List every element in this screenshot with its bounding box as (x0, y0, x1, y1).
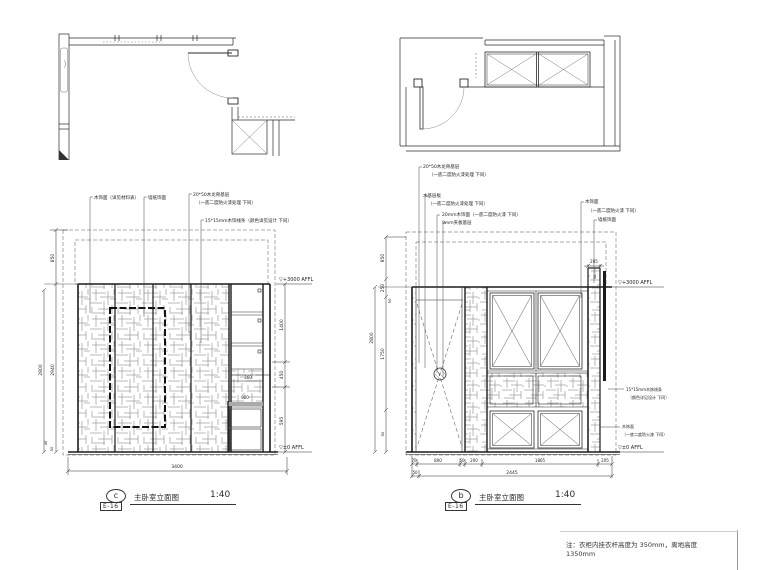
dim: 205 (590, 259, 598, 264)
level-top: ▽+3000 AFFL (279, 277, 314, 283)
level-bottom: ▽±0 AFFL (279, 445, 304, 451)
annotation-text: 15*15mm木饰线条 (626, 386, 662, 392)
annotation-text: 木饰面 (622, 423, 634, 429)
annotation-labels: 木饰面（详见材料表） 墙纸饰面 20*50木龙骨基层 （一底二度防火漆处理 下同… (94, 191, 292, 224)
dim: 3400 (171, 464, 183, 470)
note-line-1: 注：衣柜内挂衣杆高度为 350mm，离地高度 (566, 541, 738, 550)
dim: 200 (470, 458, 478, 463)
annotation-text: 墙纸饰面 (598, 216, 616, 223)
view-scale: 1:40 (555, 490, 575, 500)
dim: 2800 (369, 332, 375, 344)
ceiling-dashed-outline (406, 232, 616, 455)
tag-sheet: E-16 (100, 502, 122, 511)
plan-left-door (188, 50, 238, 104)
annotation-text: 20*50木龙骨基层 (193, 191, 230, 198)
annotation-text: （一底二度防火漆处理 下同） (429, 171, 489, 178)
dim: 2800 (38, 364, 44, 376)
view-tag-c: c E-16 主卧室立面图 1:40 (98, 489, 238, 517)
dim: 1750 (380, 348, 386, 360)
annotation-labels-right: 15*15mm木饰线条 （颜色详见设计 下同） 木饰面 （一底二度防火漆 下同） (622, 386, 669, 437)
annotation-text: 20*50木龙骨基层 (423, 163, 460, 170)
sheet-border-right (737, 530, 738, 570)
dim-lines-left (42, 228, 78, 454)
plan-left-cabinet (232, 117, 295, 154)
plan-left-corner-fill (59, 150, 69, 160)
dim: 800 (434, 458, 442, 463)
annotation-text: 墙纸饰面 (148, 194, 166, 201)
annotation-text: 20mm木饰面（一底二度防火漆 下同） (442, 211, 521, 218)
floor-plan-right (398, 28, 633, 156)
title-underline (475, 504, 581, 505)
dim: 50 (412, 470, 418, 475)
plan-right-wardrobe (485, 52, 590, 87)
dim: 595 (279, 417, 285, 426)
tag-letter: b (451, 489, 471, 503)
level-bottom: ▽±0 AFFL (618, 445, 643, 451)
dim: 50 (592, 274, 597, 279)
annotation-text: 木饰面（详见材料表） (94, 194, 139, 201)
sheet-border-top (560, 531, 738, 532)
level-top: ▽+3000 AFFL (618, 280, 653, 286)
plan-left-fixtures (61, 42, 164, 92)
title-underline (130, 504, 236, 505)
dim: 1400 (279, 319, 285, 331)
elevation-b: 20*50木龙骨基层 （一底二度防火漆处理 下同） 木基层板 （一底二度防火漆处… (370, 158, 700, 483)
dim: 900 (241, 395, 249, 400)
drawing-sheet: 木饰面（详见材料表） 墙纸饰面 20*50木龙骨基层 （一底二度防火漆处理 下同… (0, 0, 760, 570)
view-title: 主卧室立面图 (134, 492, 179, 503)
note-line-2: 1350mm (566, 550, 738, 559)
general-note: 注：衣柜内挂衣杆高度为 350mm，离地高度 1350mm (566, 541, 738, 559)
door-section (412, 287, 463, 452)
dim: 50 (459, 458, 465, 463)
view-scale: 1:40 (210, 490, 230, 500)
tag-letter: c (106, 489, 126, 503)
annotation-text: 木基层板 (423, 192, 441, 199)
dim: 450 (279, 371, 285, 380)
dim: 360 (244, 375, 252, 380)
dim: 2940 (50, 364, 56, 376)
dim: 70 (411, 458, 417, 463)
lower-cabinet (228, 401, 263, 452)
counter-top (228, 402, 263, 406)
dim: 205 (601, 458, 609, 463)
shelf-column (231, 289, 270, 381)
dim: 1865 (535, 458, 546, 463)
view-tag-b: b E-16 主卧室立面图 1:40 (443, 489, 583, 517)
dim-lines-right (272, 282, 290, 454)
dim-values-bottom: 70 800 50 200 1865 205 50 2445 (411, 458, 609, 476)
annotation-text: （一底二度防火漆 下同） (622, 431, 667, 437)
floor-plan-left (55, 32, 300, 162)
dim: 850 (380, 254, 386, 263)
view-title: 主卧室立面图 (479, 492, 524, 503)
annotation-text: （一底二度防火漆处理 下同） (196, 199, 256, 206)
dim-total: 2445 (506, 470, 518, 476)
plan-left-walls (59, 34, 295, 160)
dim: 850 (50, 254, 56, 263)
elevation-c: 木饰面（详见材料表） 墙纸饰面 20*50木龙骨基层 （一底二度防火漆处理 下同… (38, 185, 318, 485)
dim: 50 (380, 431, 385, 436)
level-markers: ▽+3000 AFFL ▽±0 AFFL (612, 280, 664, 452)
door-knob (434, 368, 446, 380)
annotation-text: （一底二度防火漆 下同） (588, 207, 639, 214)
dim: 40 (43, 440, 48, 445)
annotation-text: 9mm夹板基层 (442, 219, 472, 226)
plan-right-walls (400, 36, 620, 151)
annotation-text: （颜色详见设计 下同） (628, 394, 669, 400)
dim: 250 (380, 284, 386, 293)
annotation-text: 15*15mm木饰线条（颜色详见设计 下同） (205, 217, 292, 224)
dim: 50 (49, 446, 54, 451)
side-panel (588, 268, 606, 452)
plan-right-door (414, 53, 476, 129)
dim: 50 (387, 298, 392, 303)
tag-sheet: E-16 (445, 502, 467, 511)
annotation-labels: 20*50木龙骨基层 （一底二度防火漆处理 下同） 木基层板 （一底二度防火漆处… (423, 163, 639, 226)
annotation-text: （一底二度防火漆处理 下同） (428, 200, 488, 207)
textured-strip (465, 287, 487, 452)
annotation-text: 木饰面 (585, 198, 599, 205)
